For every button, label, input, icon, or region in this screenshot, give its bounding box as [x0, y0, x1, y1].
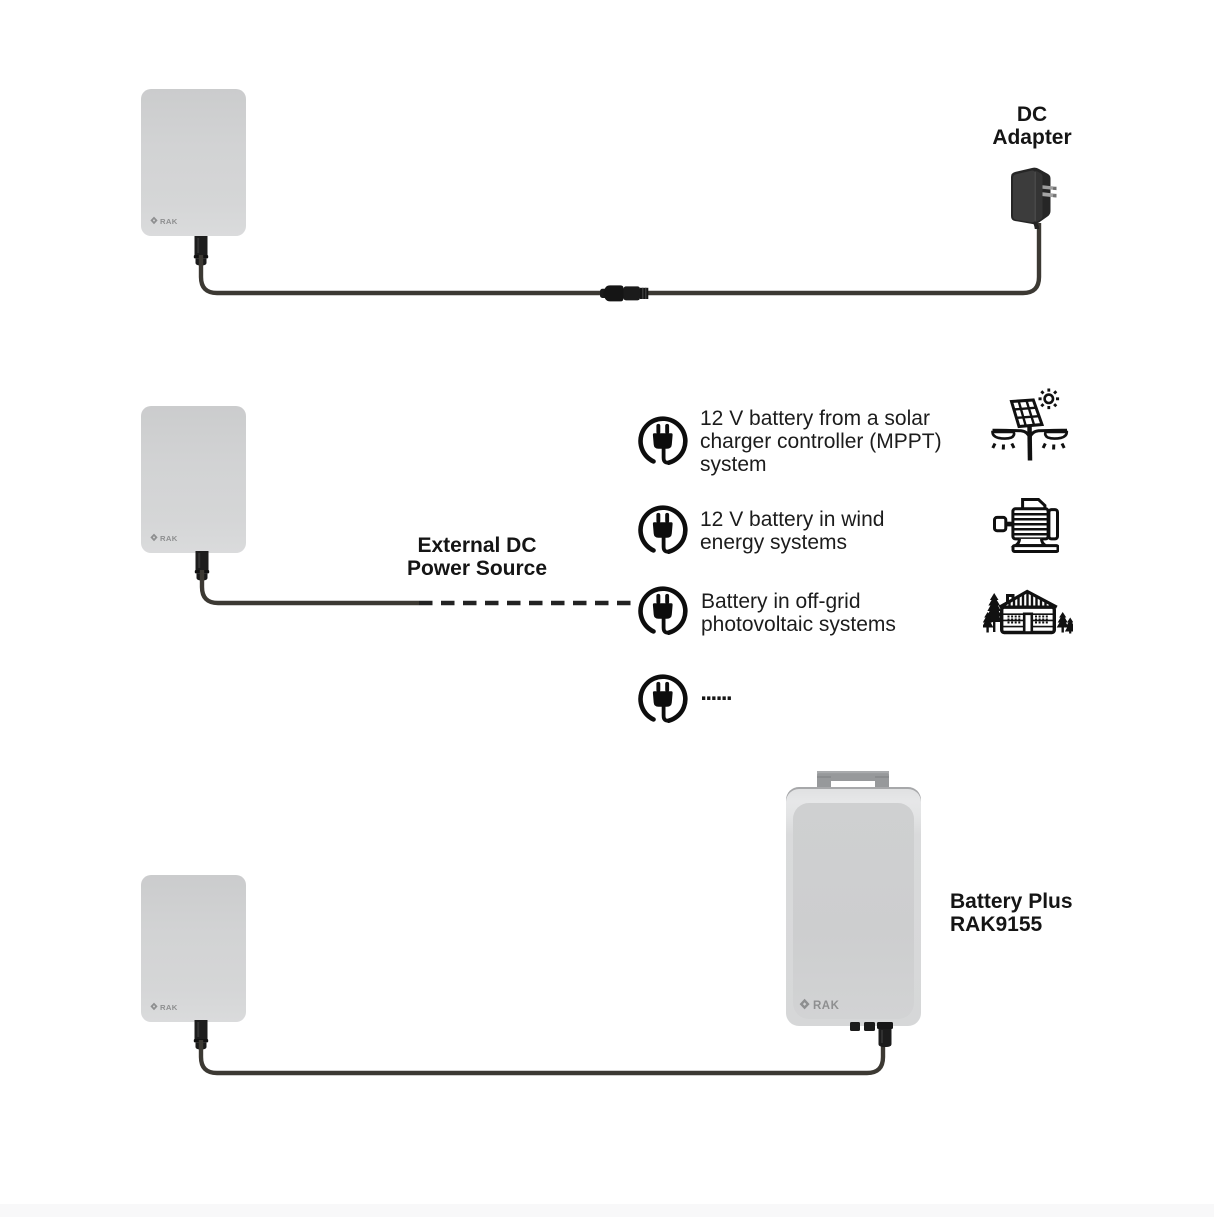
svg-text:RAK: RAK [813, 1000, 840, 1012]
svg-text:RAK: RAK [160, 534, 178, 543]
svg-text:RAK: RAK [160, 1003, 178, 1012]
svg-text:RAK: RAK [160, 217, 178, 226]
